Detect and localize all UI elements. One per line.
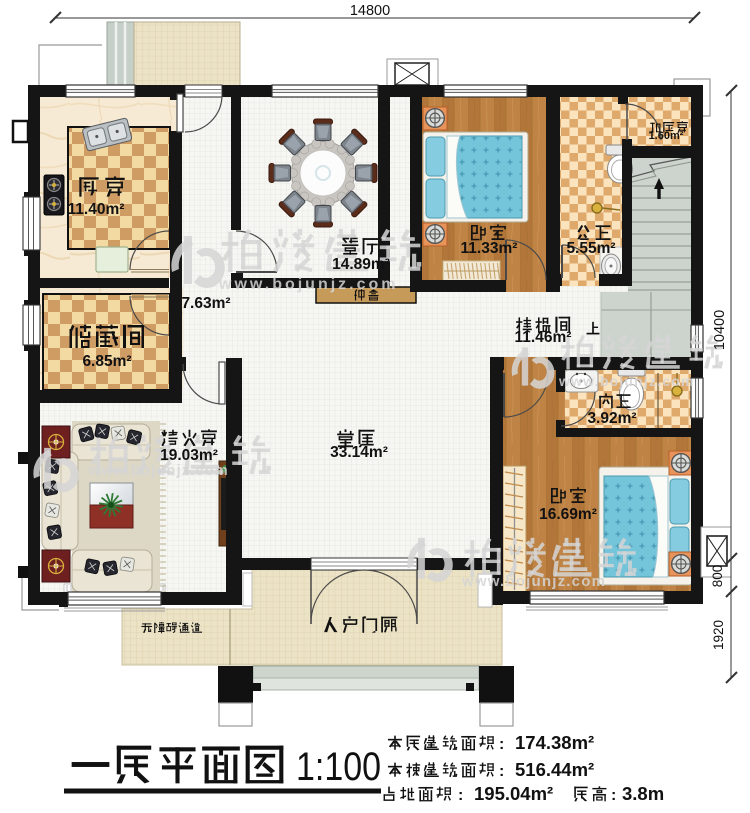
svg-text:11.33m²: 11.33m² (461, 240, 518, 257)
svg-text:16.69m²: 16.69m² (539, 506, 597, 523)
svg-text:800: 800 (710, 565, 725, 588)
svg-text:3.8m: 3.8m (622, 783, 664, 804)
svg-text::: : (499, 763, 504, 780)
svg-text:www.bojunjz.com: www.bojunjz.com (461, 573, 606, 590)
svg-text:19.03m²: 19.03m² (160, 447, 218, 464)
svg-text:11.46m²: 11.46m² (515, 329, 572, 346)
svg-text:1.60m²: 1.60m² (649, 130, 684, 142)
svg-text::: : (499, 736, 504, 753)
svg-text:www.bojunjz.com: www.bojunjz.com (558, 373, 695, 389)
svg-text:3.92m²: 3.92m² (587, 410, 636, 427)
svg-text:14800: 14800 (350, 3, 390, 19)
svg-text:195.04m²: 195.04m² (474, 783, 553, 804)
svg-text:1920: 1920 (711, 620, 726, 650)
svg-text:1:100: 1:100 (296, 745, 381, 789)
svg-text:516.44m²: 516.44m² (515, 759, 594, 780)
svg-text:7.63m²: 7.63m² (181, 295, 230, 312)
svg-text:5.55m²: 5.55m² (566, 240, 615, 257)
svg-text::: : (458, 787, 463, 804)
svg-text:174.38m²: 174.38m² (515, 732, 594, 753)
svg-text:14.89m²: 14.89m² (332, 256, 390, 273)
svg-text:11.40m²: 11.40m² (68, 201, 125, 218)
svg-text:10400: 10400 (712, 310, 728, 350)
svg-text:6.85m²: 6.85m² (82, 353, 131, 370)
svg-text:www.bojunjz.com: www.bojunjz.com (88, 463, 229, 479)
svg-text:33.14m²: 33.14m² (330, 444, 388, 461)
svg-text:www.bojunjz.com: www.bojunjz.com (218, 276, 399, 293)
svg-text::: : (611, 787, 616, 804)
